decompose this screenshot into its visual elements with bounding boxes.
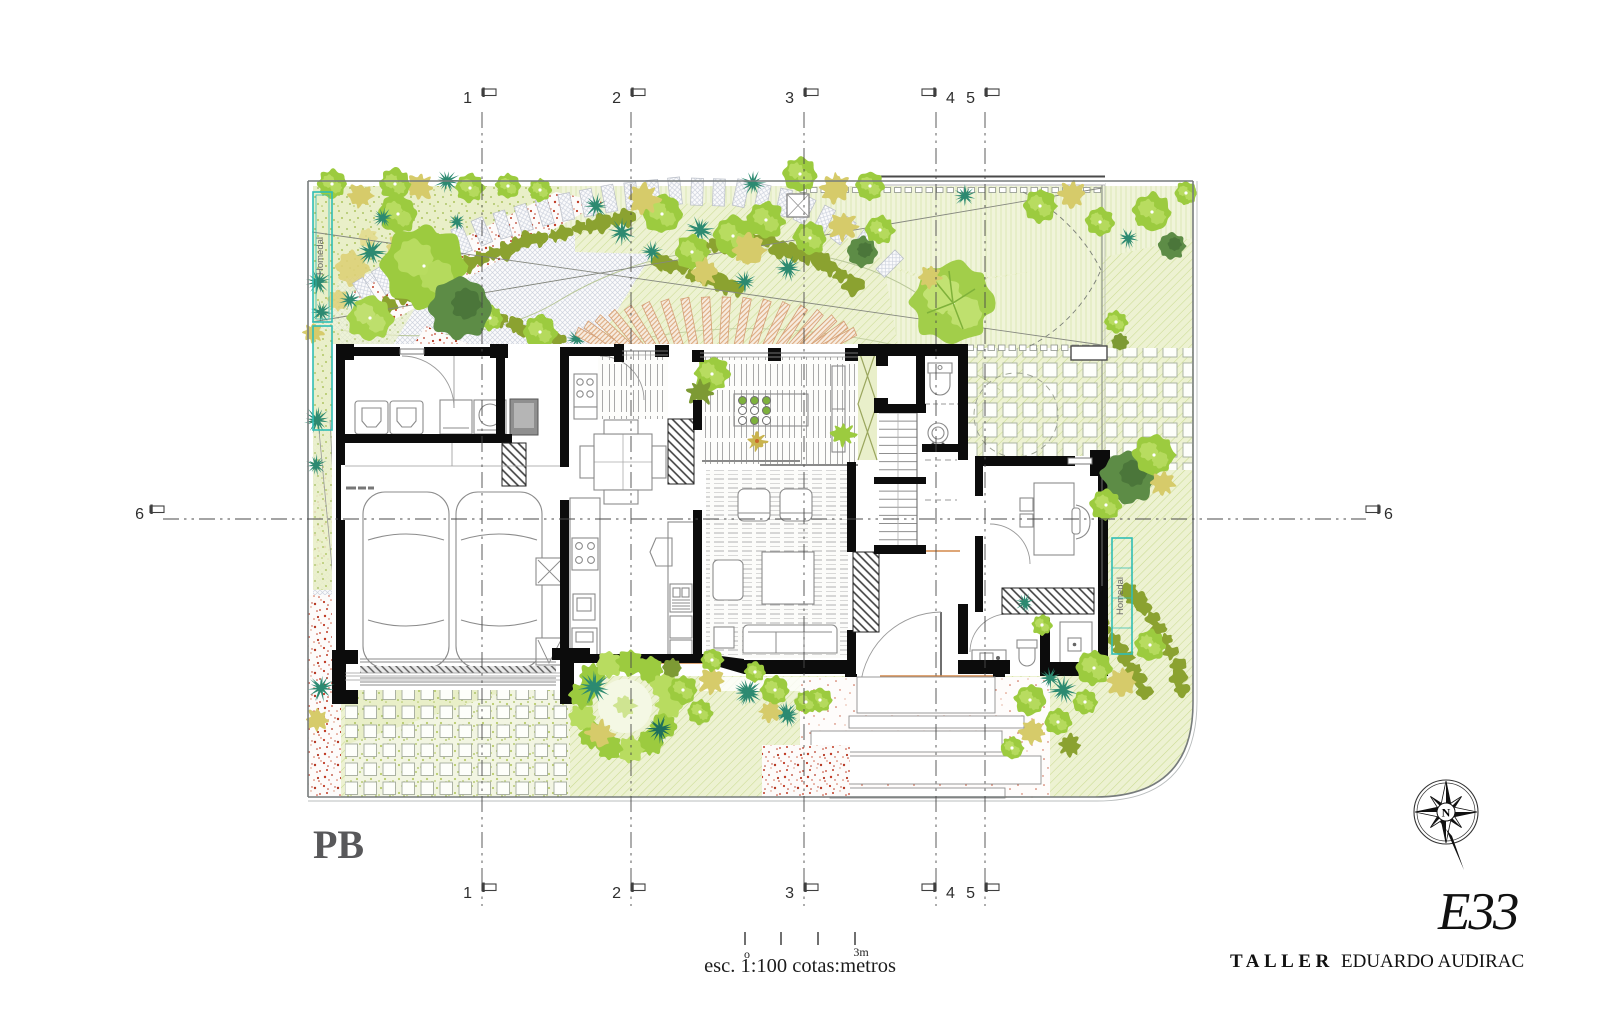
svg-text:5: 5 — [966, 885, 975, 902]
svg-text:3: 3 — [785, 885, 794, 902]
svg-text:N: N — [1442, 806, 1451, 820]
svg-text:TALLER: TALLER — [1230, 951, 1334, 972]
svg-text:PB: PB — [313, 822, 364, 867]
svg-text:1: 1 — [463, 885, 472, 902]
svg-text:4: 4 — [946, 90, 955, 107]
svg-text:Homedal: Homedal — [1115, 577, 1126, 615]
svg-text:6: 6 — [1384, 506, 1393, 523]
svg-text:4: 4 — [946, 885, 955, 902]
svg-text:5: 5 — [966, 90, 975, 107]
svg-text:Homedal: Homedal — [315, 237, 326, 275]
svg-text:E33: E33 — [1437, 883, 1518, 941]
svg-text:2: 2 — [612, 90, 621, 107]
svg-text:esc. 1:100 cotas:metros: esc. 1:100 cotas:metros — [704, 955, 896, 977]
svg-text:1: 1 — [463, 90, 472, 107]
svg-text:6: 6 — [135, 506, 144, 523]
svg-text:2: 2 — [612, 885, 621, 902]
svg-text:3: 3 — [785, 90, 794, 107]
svg-text:EDUARDO AUDIRAC: EDUARDO AUDIRAC — [1341, 951, 1524, 972]
